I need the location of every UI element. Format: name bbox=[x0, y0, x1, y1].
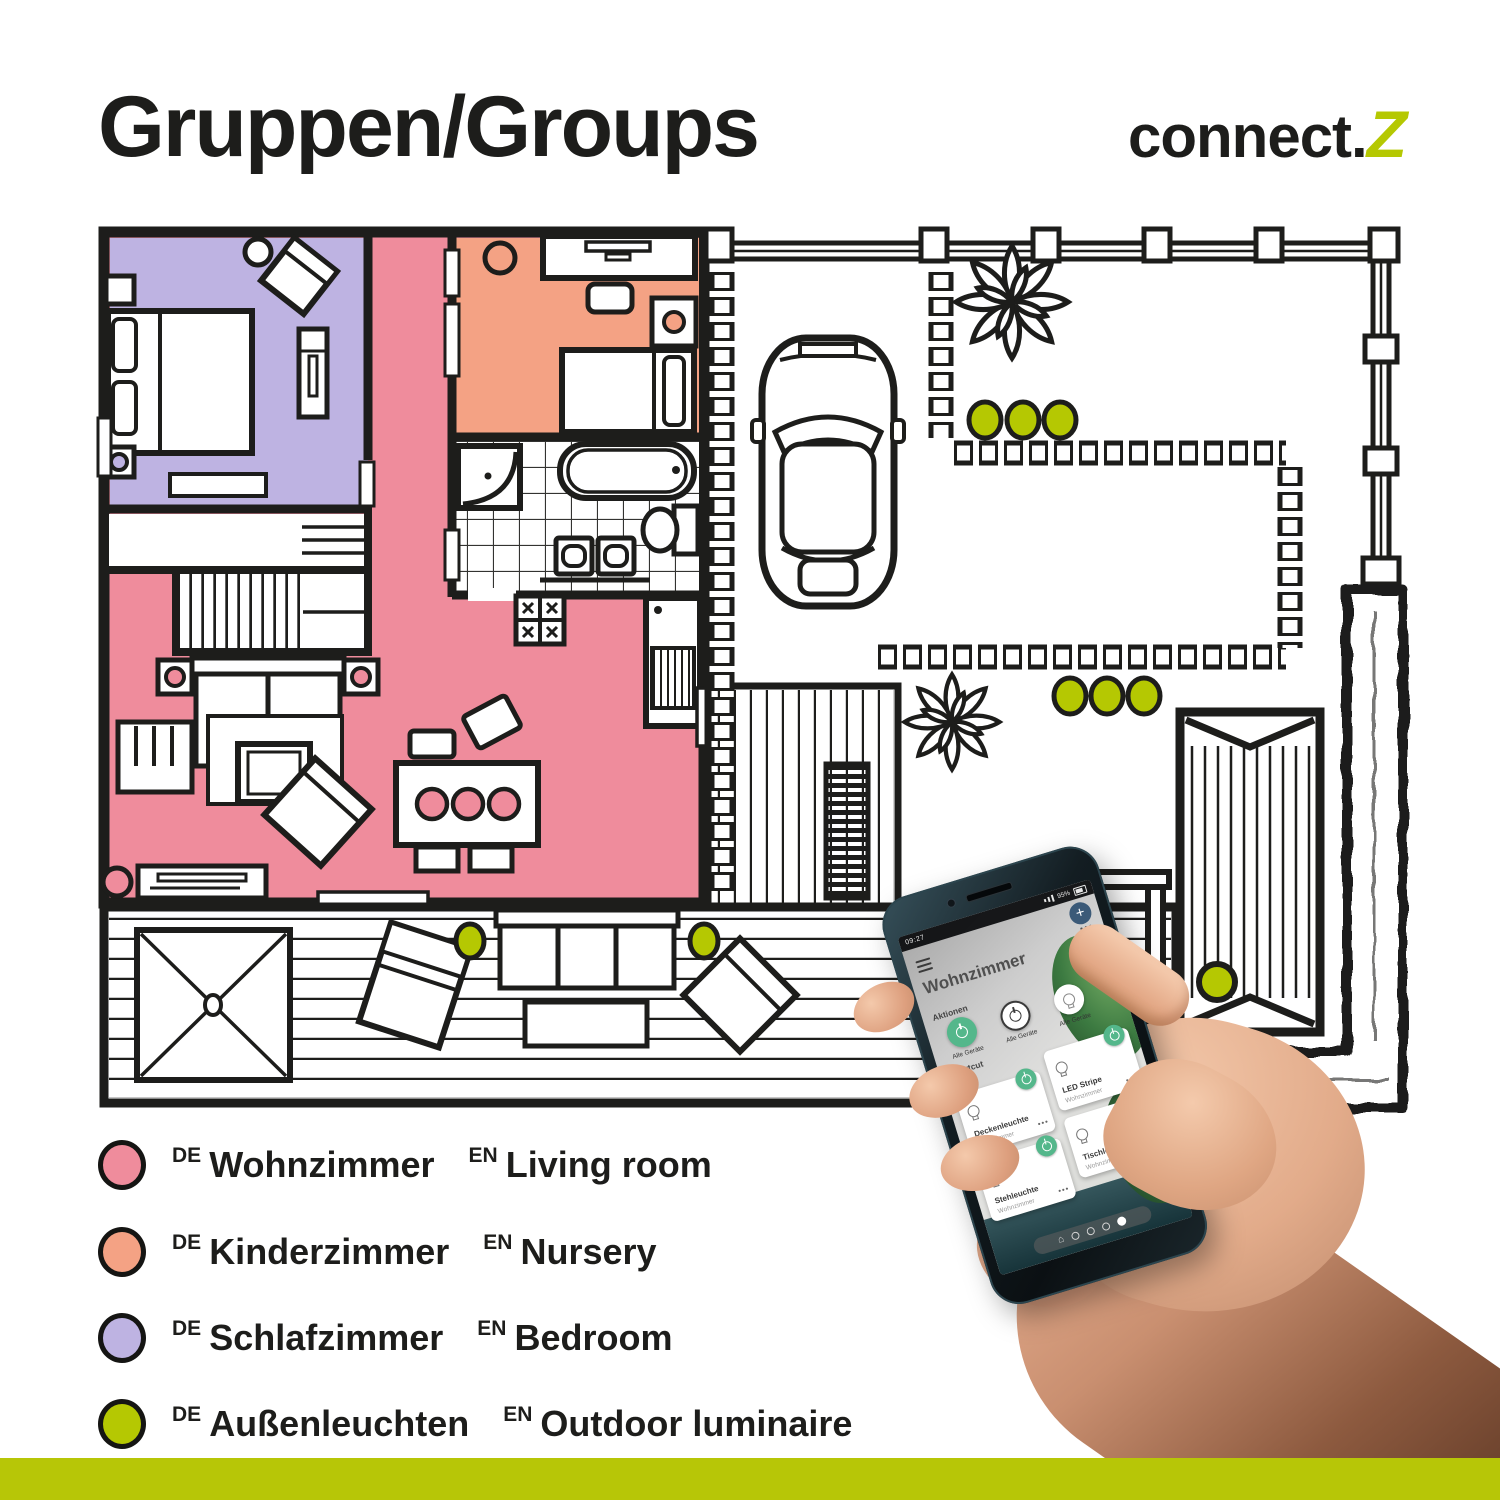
side-deck bbox=[708, 686, 898, 907]
bathtub bbox=[560, 444, 694, 498]
outdoor-light-dot bbox=[690, 924, 718, 958]
power-button[interactable] bbox=[1013, 1066, 1039, 1092]
legend-item-outdoor: DE Außenleuchten EN Outdoor luminaire bbox=[98, 1400, 886, 1448]
legend-dot-bedroom bbox=[98, 1313, 146, 1363]
nav-dot-active[interactable] bbox=[1116, 1216, 1127, 1227]
grill bbox=[826, 764, 868, 898]
nav-dot[interactable] bbox=[1086, 1226, 1096, 1236]
armchair bbox=[118, 722, 192, 792]
power-icon bbox=[1008, 1008, 1023, 1023]
window bbox=[98, 418, 111, 476]
bathroom-door-south bbox=[468, 588, 516, 601]
room-nursery bbox=[445, 232, 704, 441]
bottom-accent-bar bbox=[0, 1458, 1500, 1500]
room-title: Wohnzimmer bbox=[921, 949, 1029, 999]
outdoor-light-dot bbox=[456, 924, 484, 958]
plant-icon bbox=[905, 675, 1000, 770]
bulb-icon bbox=[1075, 1127, 1090, 1142]
page: Gruppen/Groups connect.Z bbox=[0, 0, 1500, 1500]
lamp-icon bbox=[1062, 992, 1077, 1007]
kitchen-counter bbox=[646, 598, 700, 726]
toilet bbox=[643, 506, 698, 554]
nursery-wardrobe bbox=[445, 304, 459, 376]
hamburger-menu-icon[interactable] bbox=[915, 957, 934, 975]
fence-right bbox=[1363, 261, 1399, 584]
signal-icon bbox=[1051, 895, 1055, 902]
bathroom bbox=[445, 441, 704, 601]
power-icon bbox=[1020, 1073, 1032, 1085]
card-more[interactable]: ••• bbox=[1037, 1117, 1051, 1129]
battery-percent: 95% bbox=[1057, 890, 1071, 900]
bulb-icon bbox=[966, 1104, 981, 1119]
battery-icon bbox=[1073, 884, 1088, 895]
house bbox=[98, 232, 713, 908]
plant-icon bbox=[956, 246, 1068, 358]
power-icon bbox=[954, 1025, 969, 1040]
car bbox=[752, 338, 904, 606]
room-bedroom bbox=[98, 232, 374, 509]
signal-icon bbox=[1047, 897, 1050, 902]
stove bbox=[516, 596, 564, 644]
bulb-icon bbox=[1054, 1060, 1069, 1075]
power-button[interactable] bbox=[997, 997, 1034, 1034]
phone-camera bbox=[945, 898, 956, 909]
legend-item-bedroom: DE Schlafzimmer EN Bedroom bbox=[98, 1314, 706, 1362]
terrace-table bbox=[525, 1002, 647, 1046]
legend-dot-outdoor bbox=[98, 1399, 146, 1449]
bed-double bbox=[108, 311, 252, 453]
signal-icon bbox=[1044, 899, 1047, 902]
home-icon[interactable]: ⌂ bbox=[1057, 1234, 1066, 1245]
terrace-sofa bbox=[496, 910, 678, 988]
fence-top bbox=[704, 229, 1398, 261]
outdoor-light-dot bbox=[1199, 964, 1235, 1000]
pergola bbox=[1180, 712, 1320, 1032]
power-button[interactable] bbox=[943, 1013, 980, 1050]
shower bbox=[458, 446, 520, 508]
nursery-door bbox=[445, 250, 459, 296]
power-icon bbox=[1040, 1140, 1052, 1152]
nav-dot[interactable] bbox=[1101, 1221, 1111, 1231]
nav-dot[interactable] bbox=[1070, 1230, 1080, 1240]
phone-speaker bbox=[965, 881, 1013, 903]
power-button[interactable] bbox=[1033, 1133, 1059, 1159]
clock: 09:27 bbox=[904, 934, 925, 947]
side-table bbox=[245, 239, 271, 265]
nursery-shelf bbox=[652, 298, 696, 346]
desk bbox=[543, 236, 695, 278]
bedroom-rug bbox=[170, 474, 266, 496]
dresser bbox=[299, 329, 327, 417]
bedroom-door bbox=[360, 462, 374, 506]
nightstand bbox=[106, 276, 134, 304]
floor-ball bbox=[103, 868, 131, 896]
parasol bbox=[137, 930, 290, 1080]
desk-chair bbox=[588, 284, 632, 312]
sideboard bbox=[138, 866, 266, 898]
nursery-bed bbox=[562, 350, 694, 432]
bathroom-door bbox=[445, 530, 459, 580]
card-more[interactable]: ••• bbox=[1057, 1184, 1071, 1196]
stool bbox=[485, 243, 515, 273]
power-icon bbox=[1108, 1029, 1120, 1041]
